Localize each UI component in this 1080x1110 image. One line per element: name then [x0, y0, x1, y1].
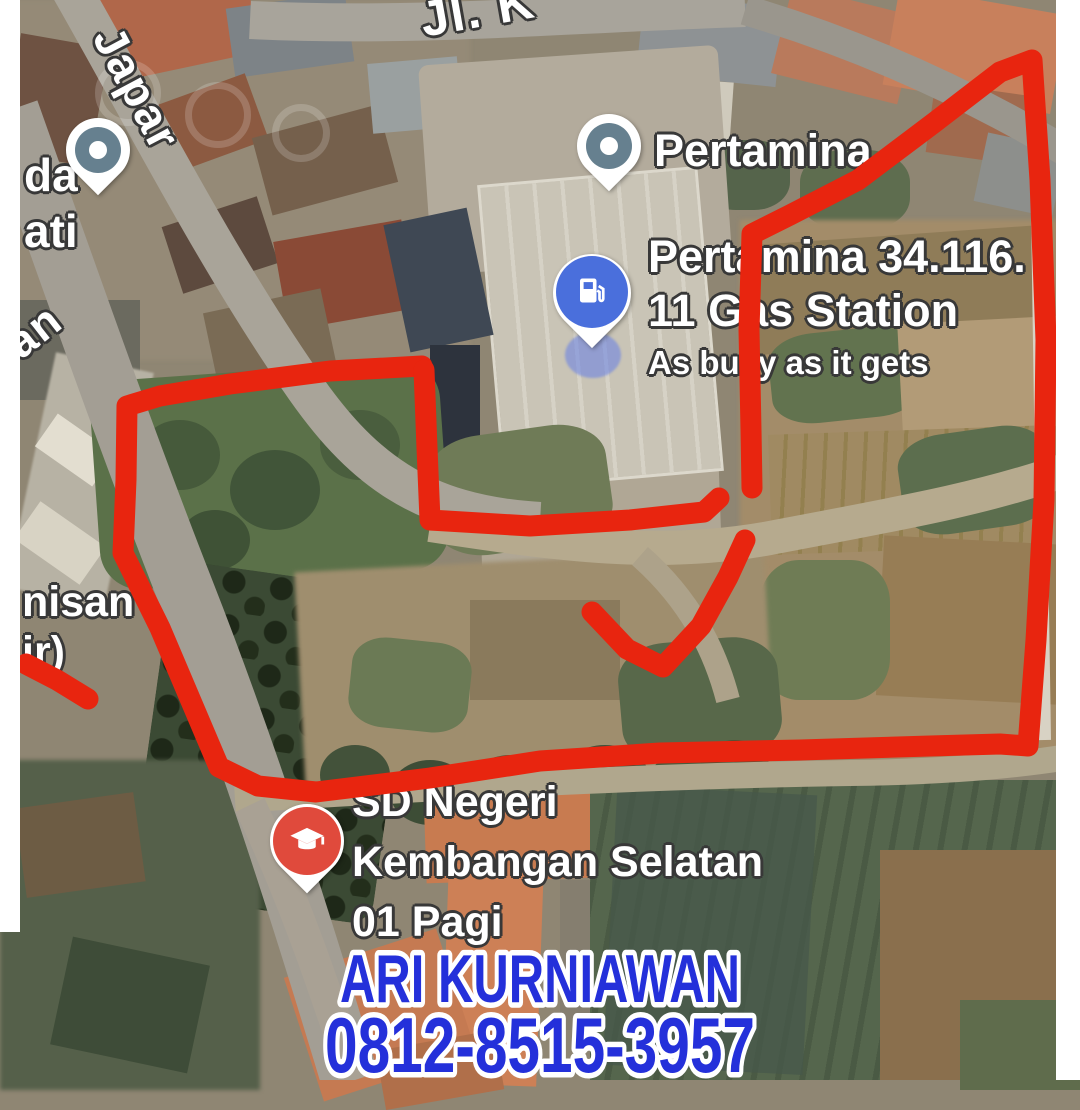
satellite-map-screenshot: { "map": { "road_labels": [ {"text": "Jl… [0, 0, 1080, 1080]
contact-overlay: ARI KURNIAWAN 0812-8515-3957 [0, 0, 1080, 1080]
contact-phone: 0812-8515-3957 [325, 1001, 755, 1080]
